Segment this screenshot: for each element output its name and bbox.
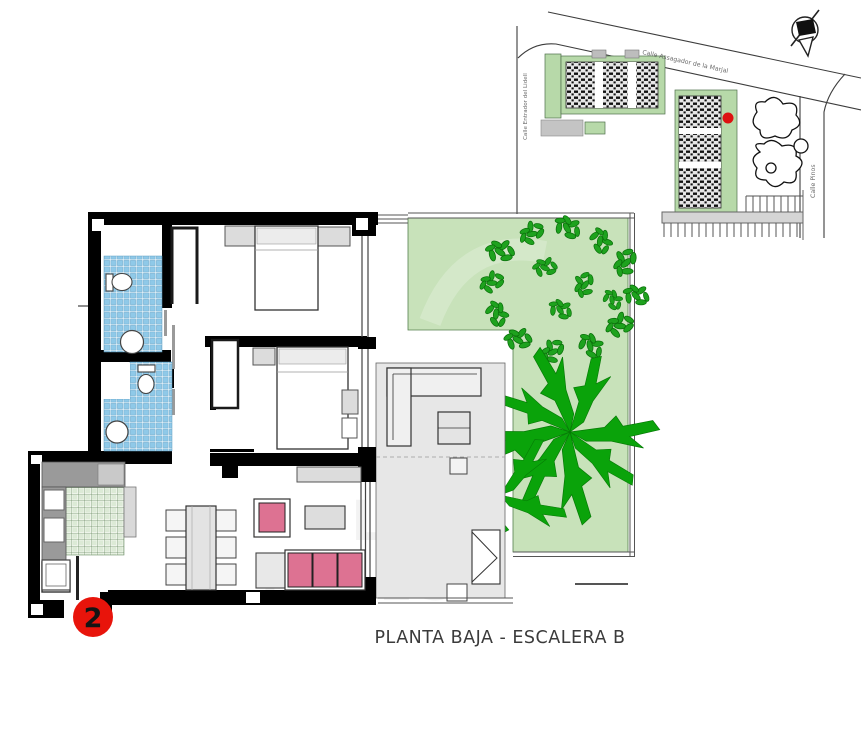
site-location-marker: [723, 113, 734, 124]
living-room: [166, 467, 365, 590]
outdoor-side-table: [450, 458, 467, 474]
site-plan: Calle Assagador de la Marjal Calle Entra…: [517, 10, 861, 240]
nightstand: [225, 226, 255, 246]
sun-lounger: [472, 530, 500, 584]
site-plan-block-a: [541, 50, 665, 136]
coffee-table: [305, 506, 345, 529]
nightstand: [318, 227, 350, 246]
north-arrow-icon: [791, 10, 819, 56]
armchair: [254, 499, 290, 537]
bathroom-1: [104, 256, 162, 354]
terrace: [376, 363, 513, 603]
sofa: [285, 550, 365, 590]
unit-marker: 2: [73, 597, 113, 637]
side-table: [256, 553, 285, 588]
bed-icon: [255, 226, 318, 310]
plan-caption: PLANTA BAJA - ESCALERA B: [374, 628, 625, 648]
desk: [342, 390, 358, 414]
sideboard: [297, 467, 361, 482]
bed-icon: [277, 347, 348, 449]
fridge: [124, 487, 136, 537]
floorplan-page: Calle Assagador de la Marjal Calle Entra…: [0, 0, 861, 732]
sink-icon: [106, 421, 128, 443]
kitchen: [42, 462, 136, 600]
bedroom-2: [212, 340, 358, 449]
unit-number: 2: [84, 603, 103, 634]
toilet-icon: [138, 365, 155, 394]
chair: [342, 418, 357, 438]
outdoor-table: [438, 412, 470, 444]
street-label-entrador: Calle Entrador del Lidell: [523, 73, 529, 140]
dining-table: [186, 506, 216, 590]
dining-set: [166, 506, 236, 590]
bathroom-2: [102, 362, 172, 451]
bedroom-1: [172, 226, 350, 310]
site-plan-block-b: [675, 90, 737, 216]
street-label-pinos: Calle Pinos: [810, 164, 817, 198]
sink-icon: [121, 331, 144, 354]
toilet-icon: [106, 274, 132, 292]
nightstand: [253, 348, 275, 365]
appliance: [42, 560, 70, 590]
